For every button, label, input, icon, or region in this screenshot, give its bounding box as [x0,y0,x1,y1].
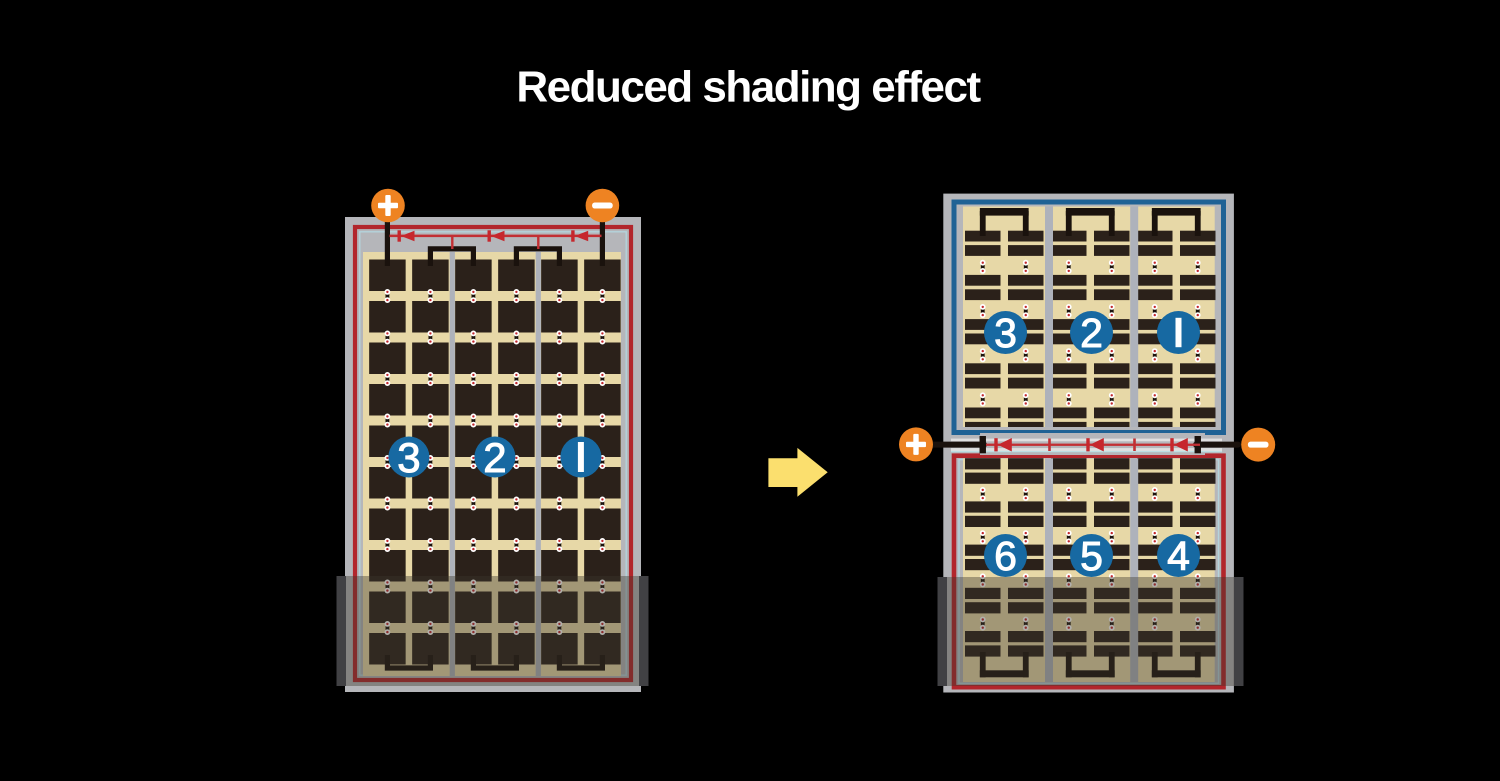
svg-text:Reduced shading effect: Reduced shading effect [516,63,981,112]
svg-text:3: 3 [994,310,1017,356]
svg-text:6: 6 [994,533,1017,579]
svg-text:2: 2 [1080,310,1103,356]
svg-text:3: 3 [397,434,420,481]
svg-text:5: 5 [1080,533,1103,579]
svg-text:4: 4 [1167,533,1190,579]
svg-text:2: 2 [483,434,506,481]
